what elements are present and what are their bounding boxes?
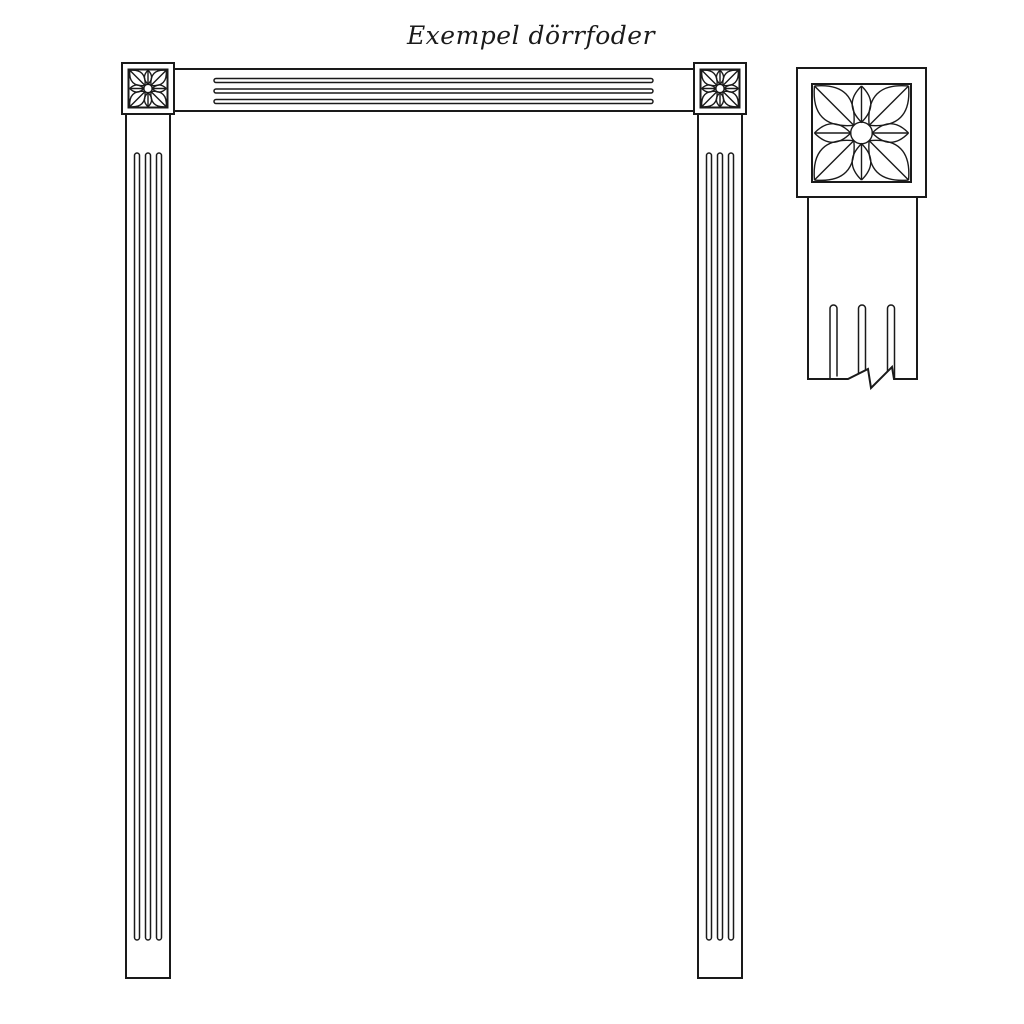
right-flute-1 [707, 153, 712, 940]
right-flute-3 [729, 153, 734, 940]
corner-block-top-right [694, 63, 746, 114]
head-flute-3 [214, 100, 653, 104]
left-flute-3 [157, 153, 162, 940]
drawing-page: Exempel dörrfoder [0, 0, 1024, 1024]
left-flute-1 [135, 153, 140, 940]
detail-flute-1 [830, 305, 837, 378]
left-side-casing [126, 114, 170, 978]
right-side-casing [698, 114, 742, 978]
detail-flute-2 [859, 305, 866, 374]
drawing-title: Exempel dörrfoder [406, 21, 657, 50]
head-casing-flutes [214, 79, 653, 104]
door-frame-elevation [122, 63, 746, 978]
corner-block-detail-view [797, 68, 926, 388]
left-flute-2 [146, 153, 151, 940]
right-flute-2 [718, 153, 723, 940]
detail-casing-flutes [830, 305, 895, 379]
head-casing [174, 69, 694, 111]
right-casing-flutes [707, 153, 734, 940]
head-flute-1 [214, 79, 653, 83]
head-flute-2 [214, 89, 653, 93]
left-casing-flutes [135, 153, 162, 940]
detail-casing-outline-with-break-line [808, 197, 917, 388]
door-casing-line-drawing: Exempel dörrfoder [0, 0, 1024, 1024]
corner-block-top-left [122, 63, 174, 114]
